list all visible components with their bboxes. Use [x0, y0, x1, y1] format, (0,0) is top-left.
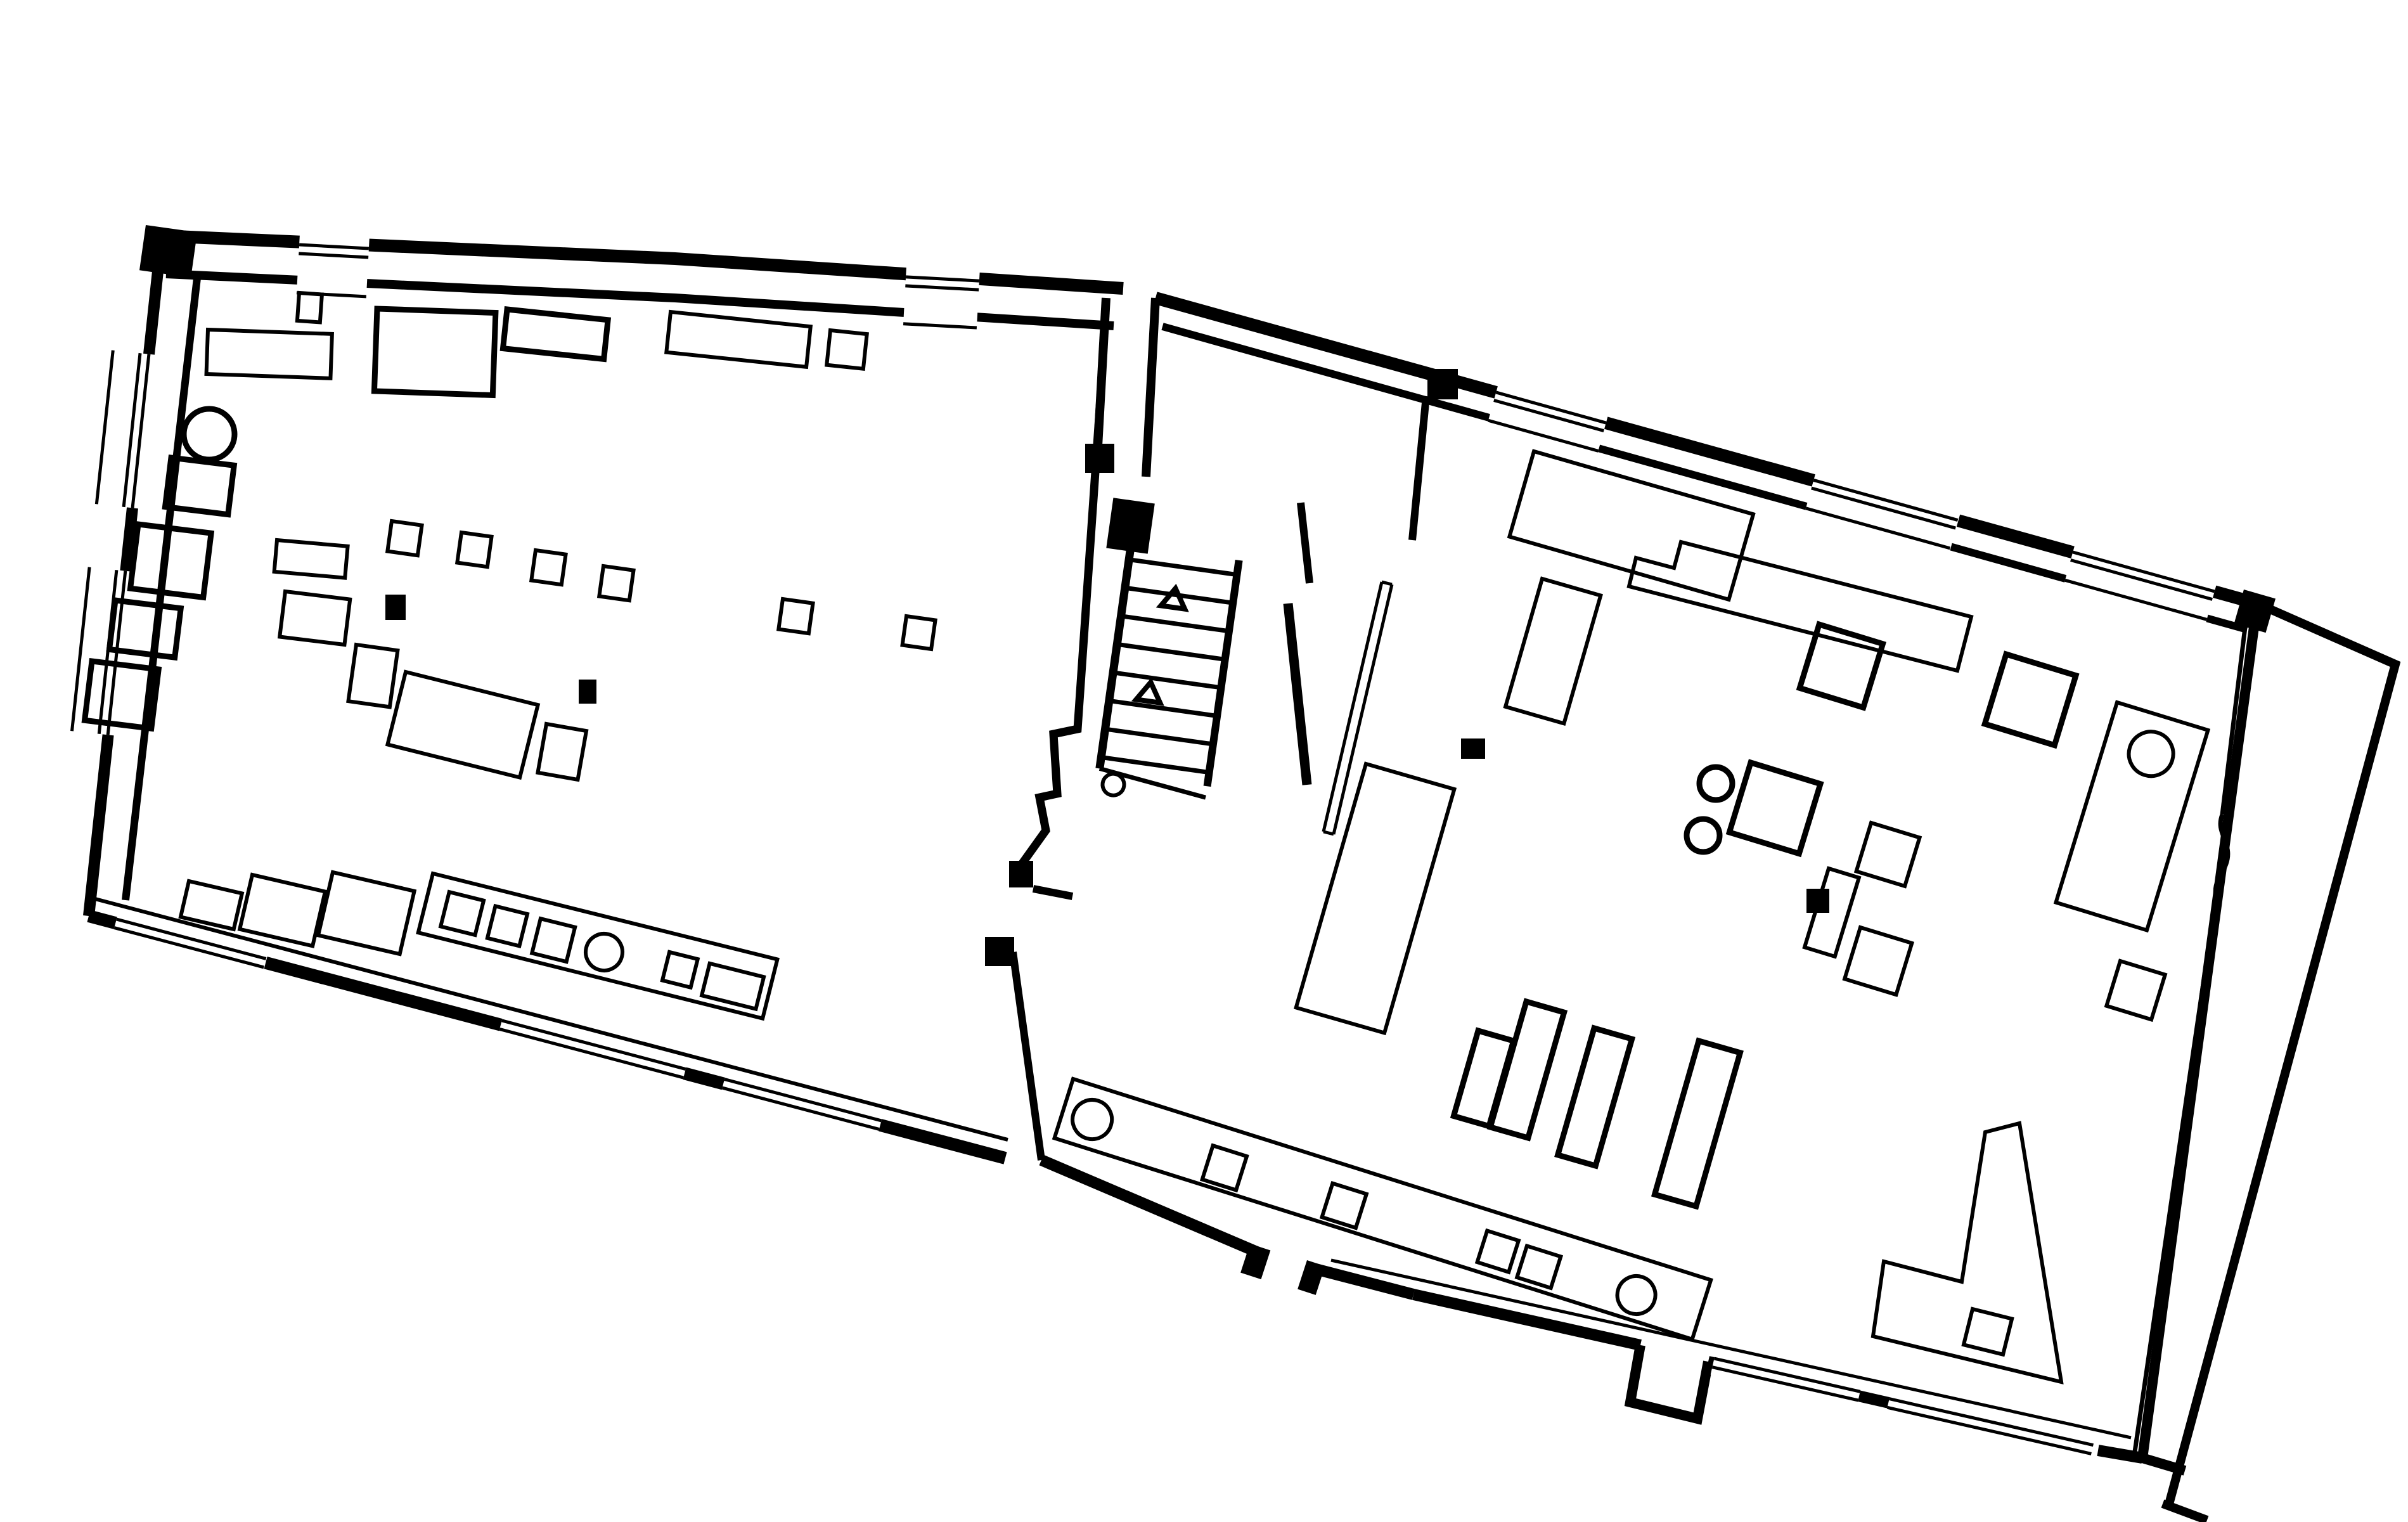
counter-square: [1517, 1246, 1561, 1287]
bench: [1490, 1002, 1564, 1138]
entrance-bump: [1630, 1345, 1708, 1419]
plinth: [538, 724, 586, 780]
window-top-right-1: [1486, 383, 1609, 460]
fence-end-stub: [2163, 1504, 2207, 1520]
counter-square: [532, 919, 575, 962]
plinth: [599, 566, 633, 600]
fence-wall: [2168, 603, 2395, 1509]
wall-bottom-mid-b: [1311, 1268, 1413, 1294]
stair-rail-right: [1207, 560, 1239, 786]
counter-square: [441, 892, 484, 935]
stair-hall-right-wall: [1288, 603, 1307, 785]
wall-bottom-mid-a: [1041, 1160, 1261, 1254]
plinth: [387, 521, 422, 555]
vestibule-post: [1427, 369, 1458, 399]
column-post: [1806, 889, 1829, 913]
wall-table: [207, 330, 332, 378]
interior-walls: [985, 298, 2276, 1295]
desk: [240, 875, 325, 946]
counter-square: [487, 906, 527, 946]
window-top-right-3: [2063, 543, 2217, 628]
wall-bottom-left-face: [95, 899, 1008, 1140]
stool-circle: [1699, 767, 1732, 800]
plinth: [903, 616, 936, 649]
bench: [1558, 1028, 1632, 1166]
small-plinth: [297, 293, 322, 322]
plinth: [457, 532, 491, 567]
stair-direction-triangle: [1136, 681, 1163, 703]
window-top-left-2: [903, 267, 980, 331]
plinth: [2106, 961, 2165, 1019]
basin-circle: [2123, 726, 2179, 782]
wall-step-stub: [1013, 952, 1041, 1160]
wall-bottom-right-face: [1331, 1260, 2131, 1438]
display-case: [1800, 624, 1883, 707]
bottom-door-post: [985, 937, 1014, 966]
counter-rect: [702, 964, 764, 1009]
display-case: [1985, 654, 2076, 745]
floor-plan-svg: [0, 0, 2408, 1522]
counter-square: [1202, 1145, 1247, 1190]
desk-with-basin: [2056, 702, 2208, 930]
desk-outline: [2056, 702, 2208, 930]
window-left-1: [82, 349, 158, 509]
table-square: [1729, 763, 1820, 854]
zigzag-door-post: [1009, 861, 1033, 887]
long-table: [387, 672, 538, 778]
counter-square: [1964, 1309, 2012, 1355]
counter-square: [662, 952, 698, 988]
plinth: [531, 550, 565, 584]
stair-start-circle: [1101, 772, 1125, 796]
l-shaped-counter: [1873, 1123, 2061, 1382]
counter-circle: [582, 930, 626, 974]
desk: [318, 872, 415, 954]
corner-post: [139, 225, 197, 278]
corridor-wall-right: [1146, 298, 1156, 477]
display-case-large: [374, 309, 495, 395]
vestibule-wall: [1412, 396, 1426, 540]
stool-circle: [1687, 819, 1720, 852]
round-table: [184, 409, 235, 460]
long-table-tall: [1296, 764, 1455, 1033]
column-post: [579, 680, 596, 704]
window-bottom-right-2: [1886, 1393, 2095, 1461]
window-top-right-2: [1803, 470, 1961, 557]
window-bottom-left-3: [720, 1073, 883, 1137]
zigzag-return-wall: [1033, 889, 1072, 896]
wall-table: [666, 312, 810, 367]
counter-square: [1478, 1231, 1519, 1272]
windows: [58, 235, 2217, 1461]
counter-square: [1322, 1183, 1367, 1228]
plinth: [778, 599, 813, 633]
vestibule-stub: [1301, 503, 1310, 583]
plinth: [1857, 823, 1920, 886]
left-hall-furniture: [85, 293, 936, 1019]
l-shaped-table: [1629, 542, 1971, 671]
low-table: [280, 591, 350, 645]
wall-bottom-right-c: [2098, 1450, 2142, 1458]
counter-circle: [1067, 1095, 1117, 1144]
counter-circle: [1613, 1271, 1660, 1319]
window-bottom-left-2: [498, 1014, 687, 1085]
column-post: [1461, 738, 1485, 759]
plinth-medium: [348, 645, 397, 707]
bench: [1655, 1041, 1741, 1206]
column-post: [385, 595, 406, 620]
window-top-left-1: [297, 235, 370, 299]
staircase: [1072, 498, 1246, 808]
plinth-tall: [1505, 579, 1600, 723]
door-post: [1297, 1260, 1325, 1295]
small-plinth: [827, 330, 866, 369]
low-table: [274, 540, 348, 578]
plinth: [1845, 927, 1912, 995]
display-case-wide: [503, 309, 608, 359]
